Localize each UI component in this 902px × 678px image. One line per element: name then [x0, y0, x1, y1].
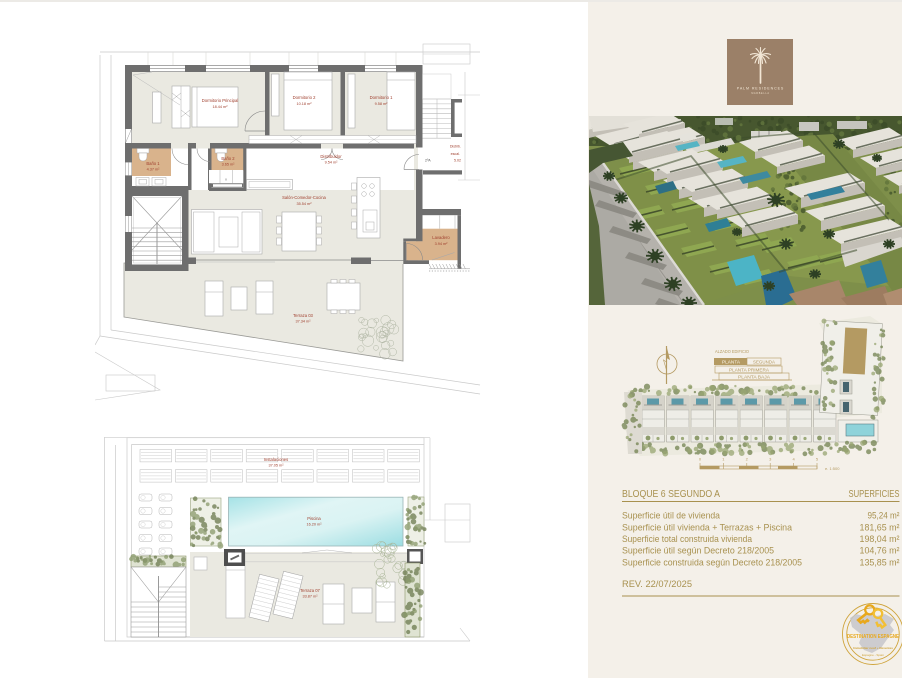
svg-text:BLOQUE 6 SEGUNDO A: BLOQUE 6 SEGUNDO A [622, 489, 720, 500]
svg-text:104,76 m²: 104,76 m² [860, 546, 900, 556]
svg-text:REV. 22/07/2025: REV. 22/07/2025 [622, 579, 692, 589]
svg-text:9.58 m²: 9.58 m² [375, 102, 389, 106]
svg-text:135,85 m²: 135,85 m² [860, 557, 900, 567]
svg-text:PLANTA PRIMERA: PLANTA PRIMERA [729, 368, 769, 373]
svg-text:35.54 m²: 35.54 m² [297, 202, 313, 206]
svg-text:Dormitorio 2: Dormitorio 2 [293, 95, 316, 100]
svg-text:5.02: 5.02 [454, 159, 461, 163]
svg-text:37.05 m²: 37.05 m² [269, 464, 285, 468]
svg-text:Dormitorio 1: Dormitorio 1 [370, 95, 393, 100]
svg-text:ALZADO EDIFICIO: ALZADO EDIFICIO [715, 349, 749, 354]
svg-text:2: 2 [746, 457, 749, 462]
svg-text:0: 0 [699, 457, 702, 462]
svg-text:198,04 m²: 198,04 m² [860, 534, 900, 544]
svg-text:Dormitorio Principal: Dormitorio Principal [202, 98, 239, 103]
svg-text:Distribuidor: Distribuidor [320, 154, 342, 159]
svg-text:18.44 m²: 18.44 m² [213, 105, 229, 109]
svg-text:Espagne - Spain: Espagne - Spain [862, 653, 884, 657]
svg-text:3.65 m²: 3.65 m² [222, 163, 236, 167]
svg-text:Baño 1: Baño 1 [146, 161, 160, 166]
svg-text:9.54 m²: 9.54 m² [325, 161, 339, 165]
svg-text:Superficie construida según De: Superficie construida según Decreto 218/… [622, 557, 802, 567]
svg-text:SEGUNDA: SEGUNDA [753, 360, 775, 365]
svg-text:95,24 m²: 95,24 m² [868, 511, 900, 521]
svg-text:37.34 m²: 37.34 m² [296, 320, 312, 324]
svg-text:4: 4 [792, 457, 795, 462]
svg-text:SUPERFICIES: SUPERFICIES [849, 489, 900, 500]
svg-text:4.37 m²: 4.37 m² [147, 168, 161, 172]
svg-text:PALM RESIDENCES: PALM RESIDENCES [737, 87, 784, 91]
svg-text:Piscina: Piscina [307, 516, 321, 521]
svg-text:Superficie útil vivienda + Ter: Superficie útil vivienda + Terrazas + Pi… [622, 522, 793, 532]
svg-text:3.94 m²: 3.94 m² [435, 242, 449, 246]
svg-text:Distrib.: Distrib. [450, 145, 461, 149]
svg-text:16.20 m²: 16.20 m² [307, 523, 323, 527]
svg-text:181,65 m²: 181,65 m² [860, 522, 900, 532]
svg-text:Superficie total construida vi: Superficie total construida vivienda [622, 534, 753, 544]
svg-text:DESTINATION ESPAGNE: DESTINATION ESPAGNE [847, 634, 899, 640]
svg-text:Baño 2: Baño 2 [221, 156, 235, 161]
svg-text:5: 5 [816, 457, 819, 462]
svg-text:Salón-Comedor-Cocina: Salón-Comedor-Cocina [282, 195, 326, 200]
svg-text:MARBELLA: MARBELLA [751, 92, 769, 95]
svg-text:1: 1 [722, 457, 725, 462]
svg-text:escal.: escal. [451, 152, 460, 156]
svg-text:3: 3 [769, 457, 772, 462]
svg-text:e. 1:500: e. 1:500 [825, 466, 840, 471]
svg-text:Lavadero: Lavadero [432, 235, 450, 240]
svg-text:Superficie útil de vivienda: Superficie útil de vivienda [622, 511, 721, 521]
svg-text:Terraza 07: Terraza 07 [300, 588, 320, 593]
svg-text:PLANTA: PLANTA [722, 360, 740, 365]
svg-text:Immobilier neuf + Reventes: Immobilier neuf + Reventes [853, 646, 893, 650]
svg-text:33.87 m²: 33.87 m² [303, 595, 319, 599]
svg-text:Terraza 03: Terraza 03 [293, 313, 313, 318]
svg-text:Superficie útil según Decreto: Superficie útil según Decreto 218/2005 [622, 546, 774, 556]
svg-text:10.18 m²: 10.18 m² [297, 102, 313, 106]
svg-text:PLANTA BAJA: PLANTA BAJA [738, 375, 770, 380]
svg-text:Instalaciones: Instalaciones [264, 457, 288, 462]
svg-text:2ºA: 2ºA [425, 159, 431, 163]
